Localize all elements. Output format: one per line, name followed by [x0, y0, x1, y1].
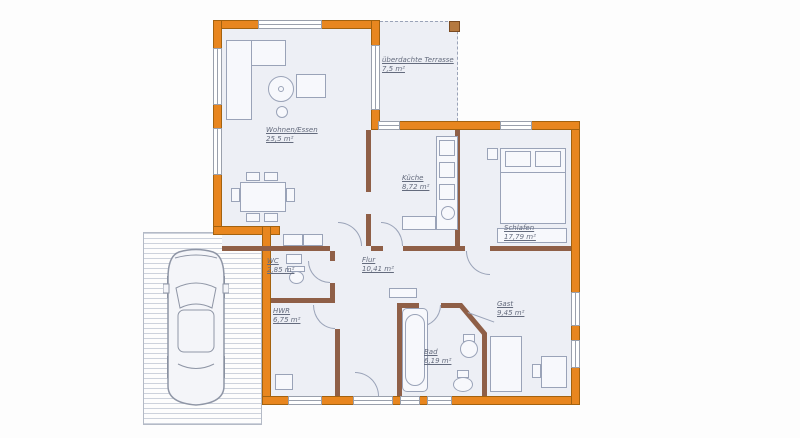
- dining-chair-3: [246, 213, 260, 222]
- window-east-2: [571, 340, 580, 368]
- label-bad: Bad 6,19 m²: [424, 348, 451, 366]
- room-area: 8,72 m²: [402, 183, 429, 192]
- iwall-living-south: [222, 246, 330, 251]
- room-name: Schlafen: [504, 224, 536, 233]
- room-name: Bad: [424, 348, 451, 357]
- room-area: 10,41 m²: [362, 265, 394, 274]
- label-flur: Flur 10,41 m²: [362, 256, 394, 274]
- iwall-kitchen-west-upper: [366, 130, 371, 192]
- label-gast: Gast 9,45 m²: [497, 300, 524, 318]
- room-name: überdachte Terrasse: [382, 56, 454, 65]
- label-wohnen: Wohnen/Essen 25,5 m²: [266, 126, 318, 144]
- window-living-top: [258, 20, 322, 29]
- window-bottom-hwr: [288, 396, 322, 405]
- terrace-post: [449, 21, 460, 32]
- label-terrasse: überdachte Terrasse 7,5 m²: [382, 56, 454, 74]
- iwall-hwr-east: [335, 329, 340, 396]
- kitchen-sink: [441, 206, 455, 220]
- room-name: Küche: [402, 174, 429, 183]
- toilet-bowl-bad: [453, 377, 473, 392]
- chair-gast: [532, 364, 541, 378]
- tv-sideboard: [296, 74, 326, 98]
- iwall-gast-west: [482, 333, 487, 396]
- floor-plan: Wohnen/Essen 25,5 m² überdachte Terrasse…: [0, 0, 800, 438]
- coffee-table-center: [278, 86, 284, 92]
- room-area: 17,79 m²: [504, 233, 536, 242]
- label-hwr: HWR 6,75 m²: [273, 307, 300, 325]
- bed-pillow-1: [505, 151, 531, 167]
- room-area: 9,45 m²: [497, 309, 524, 318]
- car-top-view-icon: [163, 246, 229, 408]
- window-east-1: [571, 292, 580, 326]
- hwr-washer: [275, 374, 293, 390]
- desk-gast: [541, 356, 567, 388]
- wall-north-rightwing: [371, 121, 580, 130]
- sideboard-south-2: [303, 234, 323, 246]
- dining-chair-2: [264, 172, 278, 181]
- window-terrace-door: [371, 45, 380, 110]
- room-name: Wohnen/Essen: [266, 126, 318, 135]
- wall-west-lower: [262, 226, 271, 405]
- label-kueche: Küche 8,72 m²: [402, 174, 429, 192]
- sink-bad: [460, 340, 478, 358]
- label-wc: WC 2,85 m²: [267, 257, 294, 275]
- dining-chair-5: [231, 188, 240, 202]
- room-name: Flur: [362, 256, 394, 265]
- window-bottom-bad: [400, 396, 420, 405]
- sideboard-south-1: [283, 234, 303, 246]
- bed-pillow-2: [535, 151, 561, 167]
- room-area: 25,5 m²: [266, 135, 318, 144]
- room-area: 7,5 m²: [382, 65, 454, 74]
- window-north-right: [500, 121, 532, 130]
- dining-chair-1: [246, 172, 260, 181]
- label-schlafen: Schlafen 17,79 m²: [504, 224, 536, 242]
- bed-blanket-line: [500, 172, 566, 173]
- window-living-left-1: [213, 48, 222, 105]
- dining-chair-4: [264, 213, 278, 222]
- nightstand: [487, 148, 498, 160]
- kitchen-appliance-3: [439, 184, 455, 200]
- room-area: 2,85 m²: [267, 266, 294, 275]
- window-living-left-2: [213, 128, 222, 175]
- kitchen-appliance-1: [439, 140, 455, 156]
- kitchen-island: [402, 216, 436, 230]
- room-name: Gast: [497, 300, 524, 309]
- room-name: HWR: [273, 307, 300, 316]
- iwall-kitchen-west-lower: [366, 214, 371, 246]
- room-name: WC: [267, 257, 294, 266]
- bathtub-inner: [405, 314, 425, 386]
- dining-chair-6: [286, 188, 295, 202]
- entrance-door-opening: [353, 396, 393, 405]
- window-kitchen-north: [378, 121, 400, 130]
- sofa-left-arm: [226, 40, 252, 120]
- iwall-wc-east-upper: [330, 251, 335, 261]
- wardrobe-gast: [490, 336, 522, 392]
- iwall-hall-north-stub: [371, 246, 383, 251]
- iwall-wc-hwr-divider: [271, 298, 335, 303]
- room-area: 6,75 m²: [273, 316, 300, 325]
- iwall-hall-north-mid: [403, 246, 465, 251]
- kitchen-appliance-2: [439, 162, 455, 178]
- plant: [276, 106, 288, 118]
- window-bottom-gast: [427, 396, 452, 405]
- room-area: 6,19 m²: [424, 357, 451, 366]
- flur-sideboard: [389, 288, 417, 298]
- iwall-hall-north-right: [490, 246, 571, 251]
- dining-table: [240, 182, 286, 212]
